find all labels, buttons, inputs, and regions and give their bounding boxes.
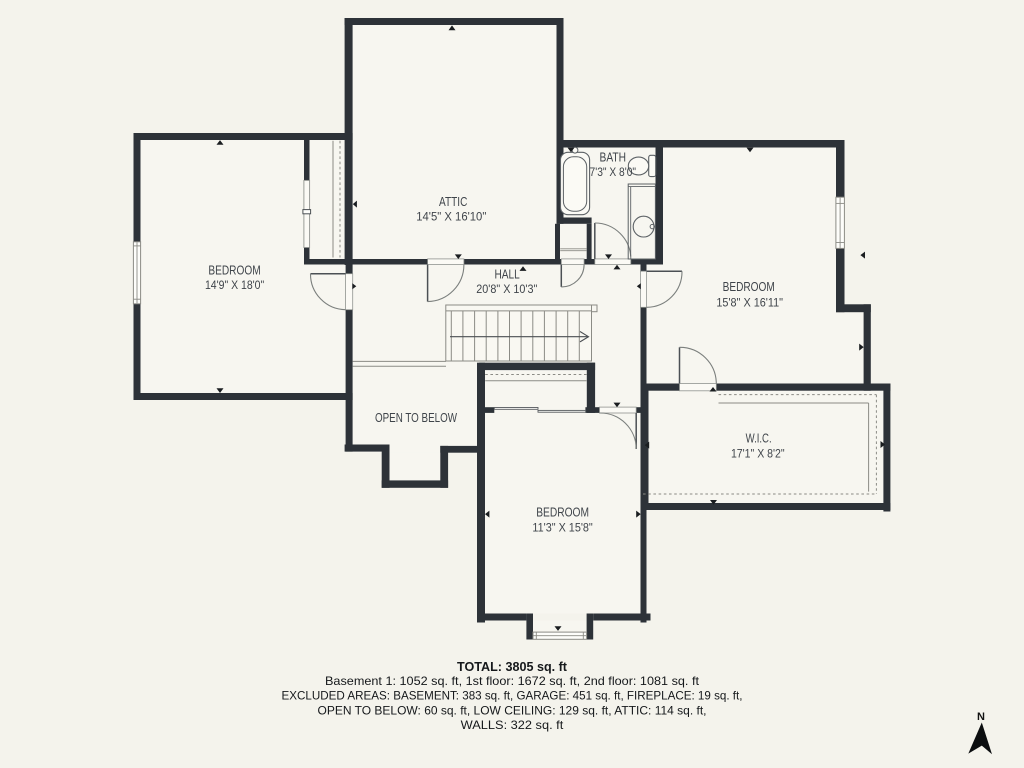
svg-text:ATTIC: ATTIC bbox=[439, 194, 467, 209]
svg-text:17'1" X 8'2": 17'1" X 8'2" bbox=[731, 446, 785, 460]
svg-text:OPEN TO BELOW: 60 sq. ft, LOW: OPEN TO BELOW: 60 sq. ft, LOW CEILING: 1… bbox=[318, 703, 707, 717]
svg-text:BATH: BATH bbox=[600, 150, 627, 165]
svg-text:HALL: HALL bbox=[495, 266, 520, 281]
svg-text:14'9" X 18'0": 14'9" X 18'0" bbox=[205, 278, 264, 292]
svg-text:W.I.C.: W.I.C. bbox=[746, 431, 772, 446]
svg-text:BEDROOM: BEDROOM bbox=[208, 263, 260, 278]
svg-text:TOTAL: 3805 sq. ft: TOTAL: 3805 sq. ft bbox=[457, 659, 568, 674]
svg-text:WALLS: 322 sq. ft: WALLS: 322 sq. ft bbox=[461, 718, 564, 732]
svg-text:11'3" X 15'8": 11'3" X 15'8" bbox=[532, 520, 592, 534]
svg-text:BEDROOM: BEDROOM bbox=[723, 279, 775, 294]
svg-text:20'8" X 10'3": 20'8" X 10'3" bbox=[476, 282, 537, 296]
svg-text:Basement 1: 1052 sq. ft, 1st f: Basement 1: 1052 sq. ft, 1st floor: 1672… bbox=[325, 674, 700, 688]
svg-text:14'5" X 16'10": 14'5" X 16'10" bbox=[416, 209, 486, 223]
svg-text:BEDROOM: BEDROOM bbox=[536, 504, 589, 519]
svg-text:7'3" X 8'0": 7'3" X 8'0" bbox=[590, 165, 637, 179]
svg-text:15'8" X 16'11": 15'8" X 16'11" bbox=[716, 295, 783, 309]
svg-text:N: N bbox=[977, 711, 985, 723]
svg-text:OPEN TO BELOW: OPEN TO BELOW bbox=[375, 410, 458, 425]
svg-text:EXCLUDED AREAS: BASEMENT: 383: EXCLUDED AREAS: BASEMENT: 383 sq. ft, GA… bbox=[282, 689, 743, 703]
